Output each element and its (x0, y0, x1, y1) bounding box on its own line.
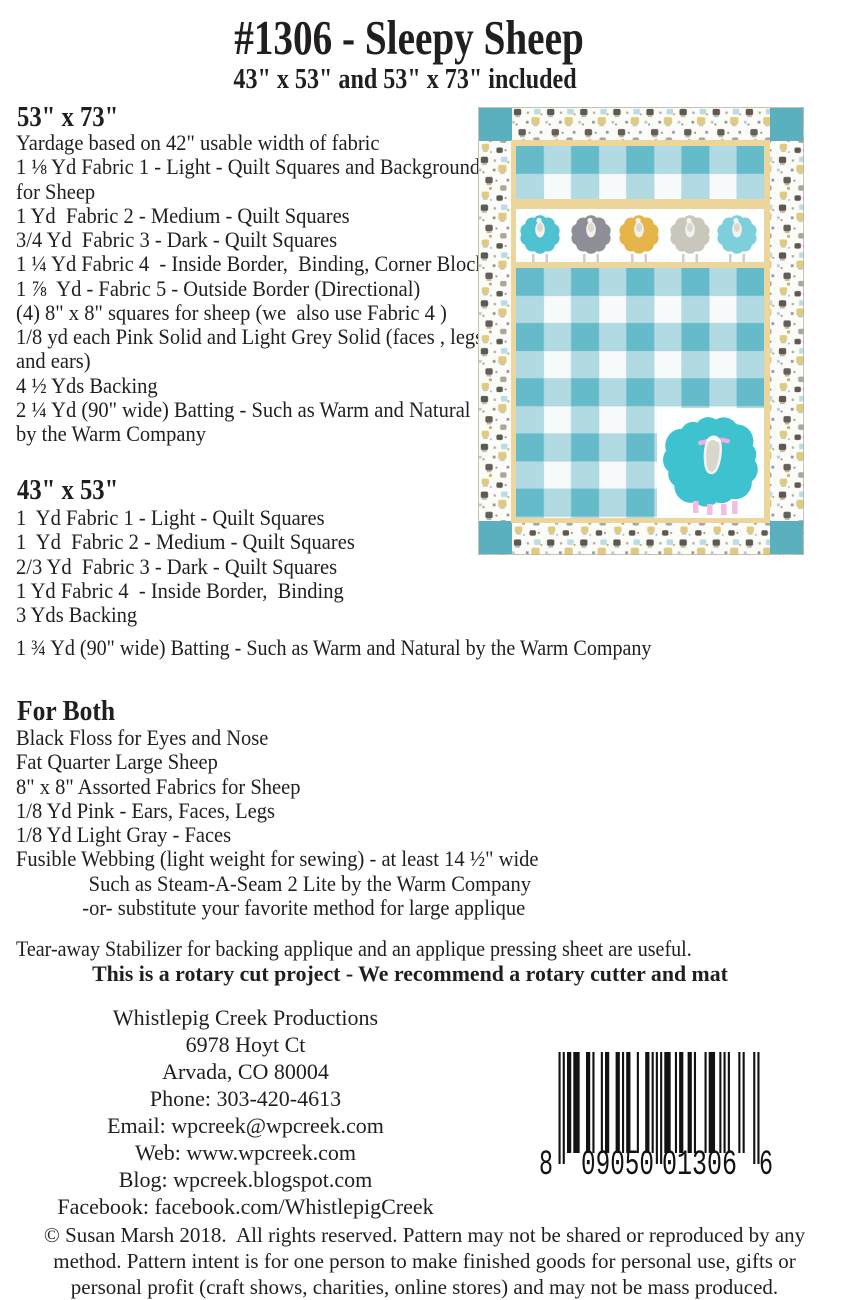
svg-text:8: 8 (539, 1145, 553, 1185)
svg-text:01306: 01306 (662, 1145, 737, 1185)
svg-text:6: 6 (759, 1145, 773, 1185)
svg-text:09050: 09050 (581, 1145, 654, 1185)
